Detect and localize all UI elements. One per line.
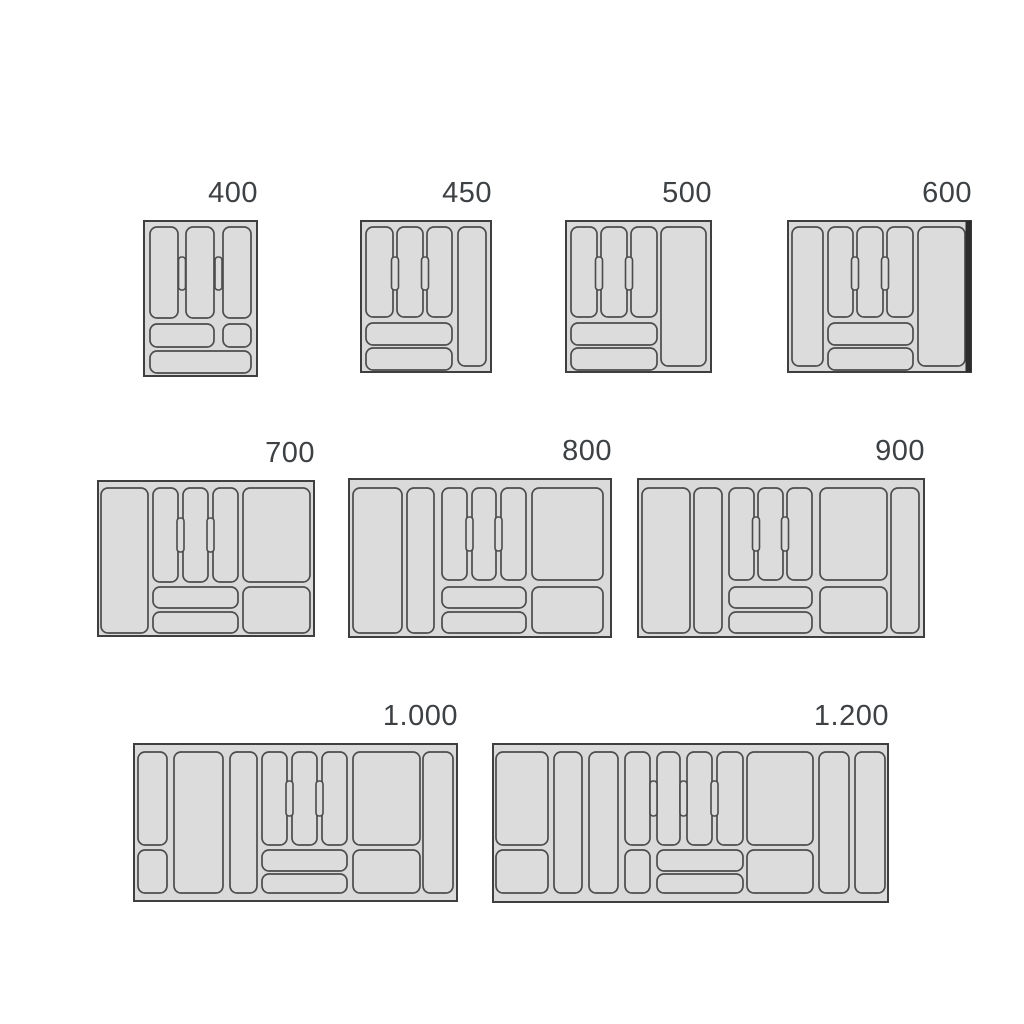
tray-compartment <box>631 227 657 317</box>
divider-notch <box>495 517 502 551</box>
tray-compartment <box>366 323 452 345</box>
tray-compartment <box>819 752 849 893</box>
divider-notch <box>177 518 184 552</box>
tray-500-drawing <box>565 220 712 373</box>
tray-compartment <box>694 488 722 633</box>
tray-compartment <box>223 324 251 347</box>
tray-size-label: 900 <box>637 434 925 468</box>
tray-compartment <box>729 488 754 580</box>
tray-compartment <box>322 752 347 845</box>
tray-compartment <box>820 488 887 580</box>
tray-compartment <box>532 488 603 580</box>
tray-compartment <box>496 850 548 893</box>
tray-compartment <box>855 752 885 893</box>
tray-compartment <box>642 488 690 633</box>
tray-compartment <box>262 850 347 871</box>
tray-compartment <box>747 752 813 845</box>
tray-compartment <box>571 323 657 345</box>
tray-compartment <box>657 874 743 893</box>
tray-compartment <box>442 488 467 580</box>
tray-compartment <box>717 752 743 845</box>
tray-1200-drawing <box>492 743 889 903</box>
divider-notch <box>882 257 889 290</box>
divider-notch <box>422 257 429 290</box>
divider-notch <box>179 257 186 290</box>
tray-compartment <box>366 227 393 317</box>
tray-450-drawing <box>360 220 492 373</box>
tray-compartment <box>138 850 167 893</box>
tray-compartment <box>150 324 214 347</box>
divider-notch <box>466 517 473 551</box>
tray-compartment <box>496 752 548 845</box>
tray-compartment <box>828 348 913 370</box>
tray-size-label: 700 <box>97 436 315 470</box>
tray-compartment <box>792 227 823 366</box>
tray-600-drawing <box>787 220 972 373</box>
tray-1000-drawing <box>133 743 458 902</box>
tray-compartment <box>820 587 887 633</box>
tray-size-label: 400 <box>143 176 258 210</box>
tray-compartment <box>571 348 657 370</box>
tray-compartment <box>828 323 913 345</box>
tray-compartment <box>407 488 434 633</box>
tray-compartment <box>292 752 317 845</box>
tray-size-label: 600 <box>787 176 972 210</box>
tray-compartment <box>213 488 238 582</box>
tray-size-label: 800 <box>348 434 612 468</box>
tray-compartment <box>501 488 526 580</box>
divider-notch <box>596 257 603 290</box>
tray-size-label: 500 <box>565 176 712 210</box>
tray-900-drawing <box>637 478 925 638</box>
tray-size-label: 1.000 <box>133 699 458 733</box>
tray-compartment <box>138 752 167 845</box>
cut-edge <box>966 221 972 372</box>
tray-compartment <box>857 227 883 317</box>
tray-compartment <box>353 850 420 893</box>
tray-compartment <box>243 488 310 582</box>
tray-compartment <box>891 488 919 633</box>
tray-compartment <box>601 227 627 317</box>
tray-compartment <box>353 488 402 633</box>
tray-compartment <box>571 227 597 317</box>
tray-compartment <box>427 227 452 317</box>
tray-compartment <box>729 587 812 608</box>
tray-compartment <box>243 587 310 633</box>
tray-compartment <box>787 488 812 580</box>
tray-size-label: 450 <box>360 176 492 210</box>
divider-notch <box>852 257 859 290</box>
divider-notch <box>753 517 760 551</box>
divider-notch <box>215 257 222 290</box>
tray-compartment <box>174 752 223 893</box>
tray-compartment <box>729 612 812 633</box>
tray-400-drawing <box>143 220 258 377</box>
divider-notch <box>626 257 633 290</box>
tray-compartment <box>532 587 603 633</box>
tray-compartment <box>442 587 526 608</box>
tray-compartment <box>554 752 582 893</box>
tray-compartment <box>101 488 148 633</box>
tray-compartment <box>153 488 178 582</box>
tray-compartment <box>397 227 423 317</box>
cutlery-tray-size-diagram: 4004505006007008009001.0001.200 <box>0 0 1024 1024</box>
tray-compartment <box>625 752 650 845</box>
divider-notch <box>207 518 214 552</box>
tray-compartment <box>150 351 251 373</box>
tray-compartment <box>657 850 743 871</box>
tray-compartment <box>366 348 452 370</box>
tray-compartment <box>472 488 496 580</box>
tray-size-label: 1.200 <box>492 699 889 733</box>
tray-compartment <box>625 850 650 893</box>
divider-notch <box>711 781 718 816</box>
tray-compartment <box>353 752 420 845</box>
tray-compartment <box>758 488 783 580</box>
tray-compartment <box>747 850 813 893</box>
tray-compartment <box>150 227 178 318</box>
tray-compartment <box>687 752 712 845</box>
divider-notch <box>286 781 293 816</box>
divider-notch <box>392 257 399 290</box>
tray-compartment <box>458 227 486 366</box>
tray-compartment <box>153 612 238 633</box>
divider-notch <box>650 781 657 816</box>
tray-compartment <box>223 227 251 318</box>
divider-notch <box>680 781 687 816</box>
tray-compartment <box>423 752 453 893</box>
tray-compartment <box>186 227 214 318</box>
tray-compartment <box>887 227 913 317</box>
tray-compartment <box>661 227 706 366</box>
tray-compartment <box>262 874 347 893</box>
tray-compartment <box>183 488 208 582</box>
divider-notch <box>316 781 323 816</box>
tray-compartment <box>153 587 238 608</box>
tray-compartment <box>230 752 257 893</box>
tray-compartment <box>442 612 526 633</box>
tray-compartment <box>262 752 287 845</box>
tray-compartment <box>828 227 853 317</box>
tray-compartment <box>918 227 965 366</box>
tray-compartment <box>657 752 680 845</box>
tray-700-drawing <box>97 480 315 637</box>
divider-notch <box>782 517 789 551</box>
tray-compartment <box>589 752 618 893</box>
tray-800-drawing <box>348 478 612 638</box>
